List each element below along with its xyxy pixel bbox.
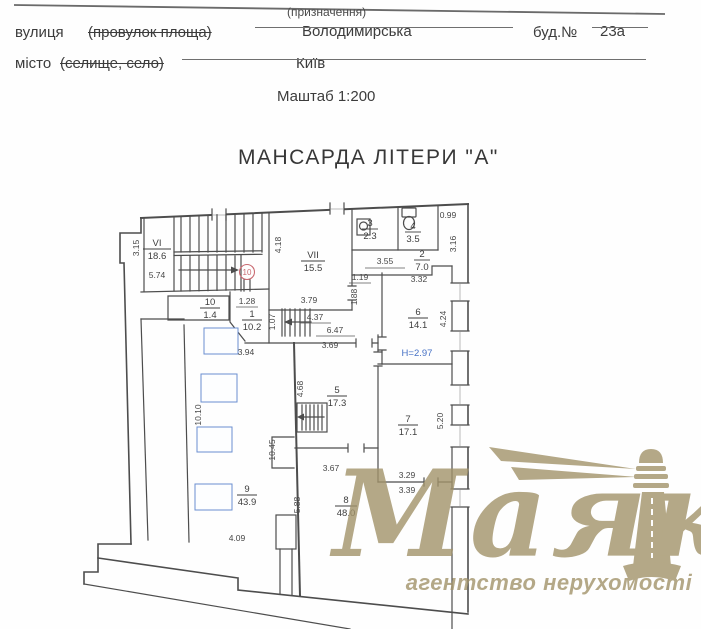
circled-room-number: 10 [243, 268, 252, 277]
dim-3-79: 3.79 [301, 295, 318, 305]
dim-4-18: 4.18 [273, 236, 283, 253]
room-1-area: 10.2 [243, 322, 262, 333]
dim-3-15: 3.15 [131, 239, 141, 256]
dim-6-47: 6.47 [327, 325, 344, 335]
dim-3-55: 3.55 [377, 256, 394, 266]
dim-4-37: 4.37 [307, 312, 324, 322]
room-4-area: 3.5 [406, 234, 419, 245]
dim-10-45: 10.45 [267, 439, 277, 461]
room-vii-number: VII [307, 250, 319, 261]
room-1-number: 1 [249, 309, 254, 320]
room-10-number: 10 [205, 297, 216, 308]
room-6-number: 6 [415, 307, 420, 318]
dim-4-68: 4.68 [295, 380, 305, 397]
dim-3-94: 3.94 [238, 347, 255, 357]
room-2-number: 2 [419, 249, 424, 260]
room-9-area: 43.9 [238, 497, 257, 508]
circled-room-mark: 10 [240, 265, 255, 292]
dim-3-69: 3.69 [322, 340, 339, 350]
room-3-number: 3 [367, 218, 372, 229]
floor-plan-drawing: VI 18.6 VII 15.5 3 2.3 4 3.5 2 7.0 6 14.… [0, 0, 701, 629]
room-7-number: 7 [405, 414, 410, 425]
room-6-area: 14.1 [409, 320, 428, 331]
scanned-floor-plan-document: (призначення) вулиця (провулок площа) Во… [0, 0, 701, 629]
dim-4-24: 4.24 [438, 310, 448, 327]
dim-4-09: 4.09 [229, 533, 246, 543]
room-2-area: 7.0 [415, 262, 428, 273]
room-7-area: 17.1 [399, 427, 418, 438]
dim-1-28: 1.28 [239, 296, 256, 306]
dim-5-20: 5.20 [435, 412, 445, 429]
watermark: Маяк агентство нерухомості [329, 444, 701, 595]
dim-10-10: 10.10 [193, 404, 203, 426]
room-9-number: 9 [244, 484, 249, 495]
room-10-area: 1.4 [203, 310, 216, 321]
room-vii-area: 15.5 [304, 263, 323, 274]
dim-5-88: 5.88 [292, 496, 302, 513]
hatched-shaft [276, 515, 296, 549]
room-4-number: 4 [410, 221, 415, 232]
dim-1-19: 1.19 [352, 272, 369, 282]
ceiling-height-note: H=2.97 [402, 348, 433, 359]
room-vi-number: VI [153, 238, 162, 249]
dimension-lines [236, 268, 405, 336]
dim-1-07: 1.07 [267, 313, 277, 330]
watermark-brand: Маяк [329, 444, 701, 585]
room-vi-area: 18.6 [148, 251, 167, 262]
dim-3-16: 3.16 [448, 235, 458, 252]
watermark-tagline: агентство нерухомості [406, 570, 693, 595]
room-3-area: 2.3 [363, 231, 376, 242]
room-5-number: 5 [334, 385, 339, 396]
room-5-area: 17.3 [328, 398, 347, 409]
dim-0-99: 0.99 [440, 210, 457, 220]
dim-3-32: 3.32 [411, 274, 428, 284]
room5-stairs [297, 403, 327, 432]
dim-5-74: 5.74 [149, 270, 166, 280]
dim-1-88: 1.88 [349, 288, 359, 305]
